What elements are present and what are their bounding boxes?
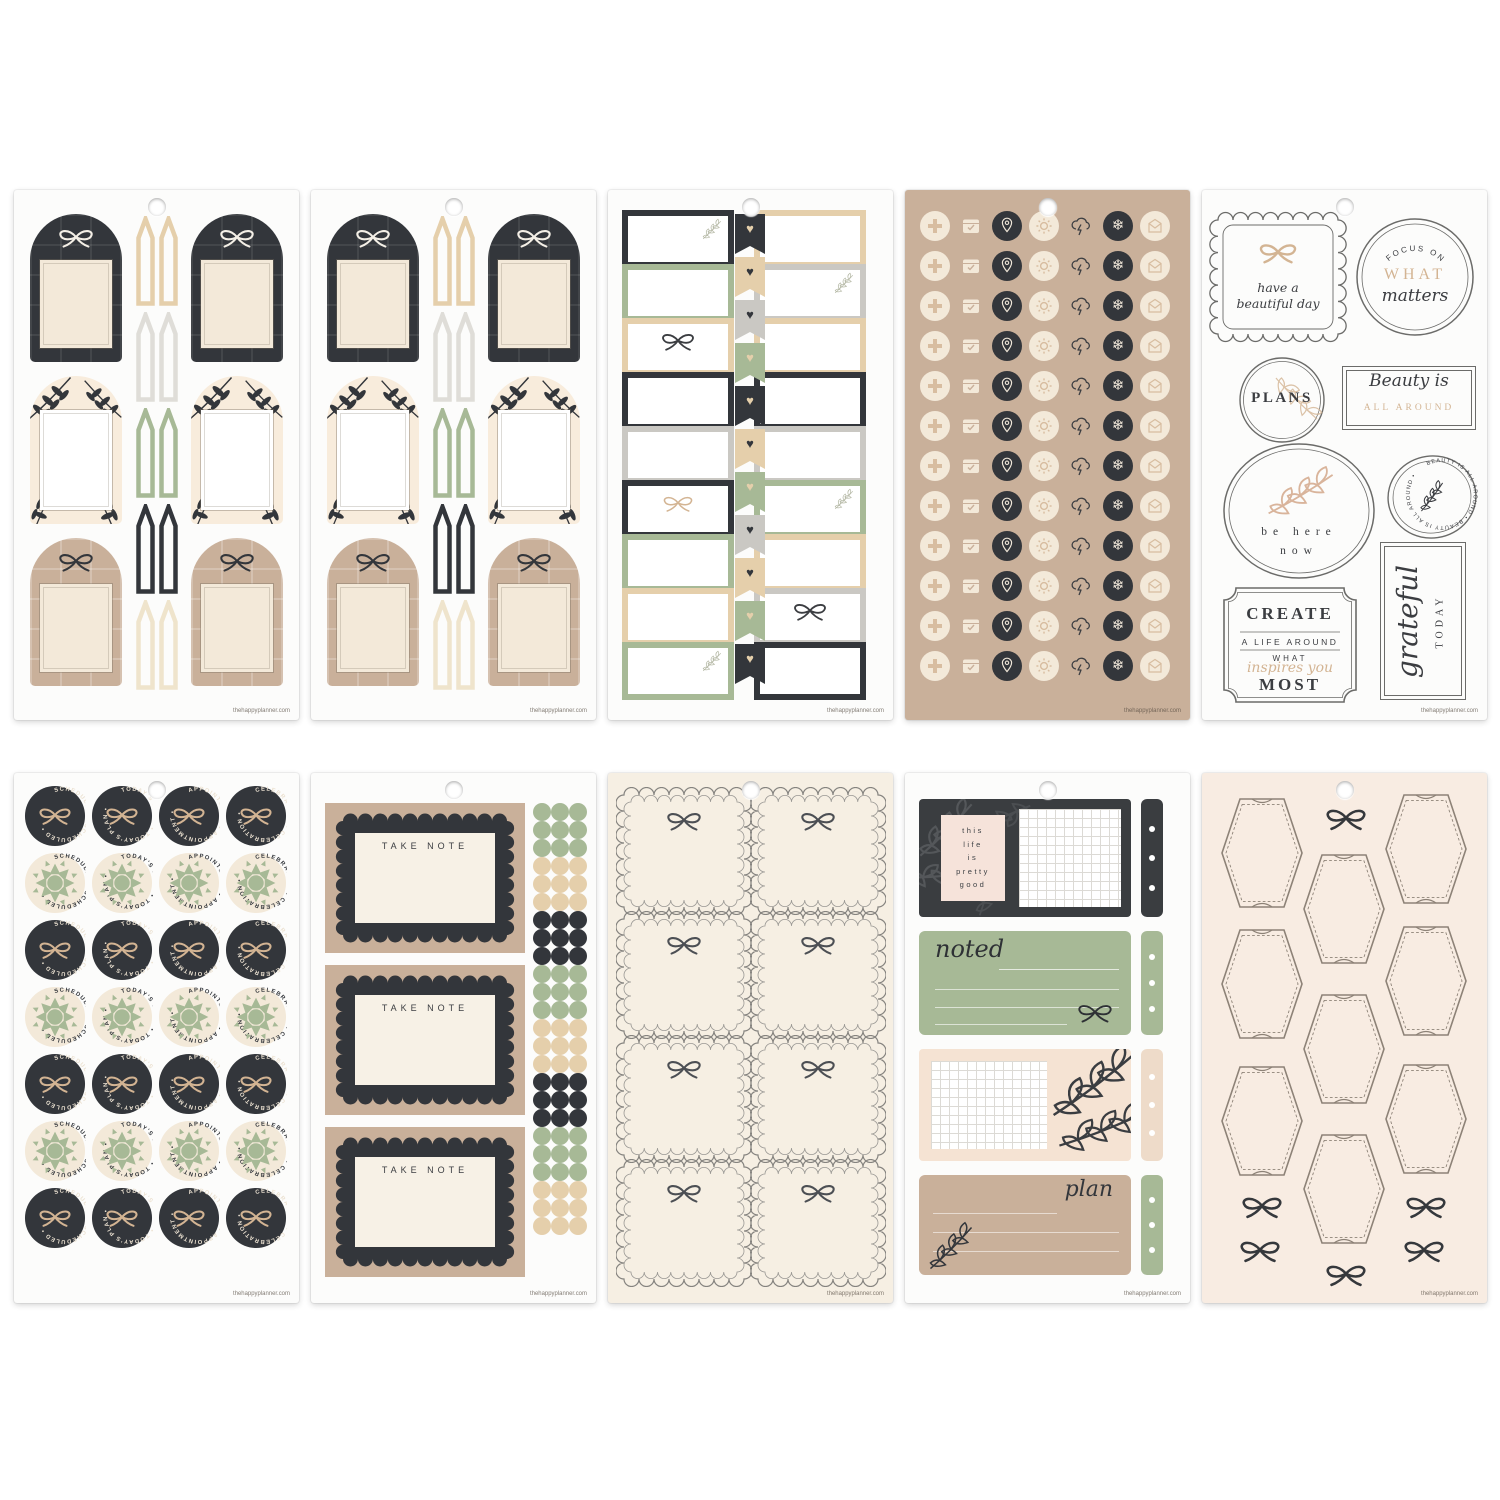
page-flag-sticker: [433, 504, 452, 594]
take-note-title: TAKE NOTE: [355, 841, 495, 851]
hex-tag-sticker: [1220, 928, 1304, 1040]
calendar-icon: [962, 577, 980, 595]
bow-icon: [662, 809, 706, 834]
snowflake-icon: ❄: [1103, 651, 1133, 681]
medical-cross-icon: [920, 291, 950, 321]
storm-cloud-icon: [1069, 614, 1093, 638]
sticker-product-image: thehappyplanner.com thehappyplanner.com♥…: [0, 0, 1500, 1500]
sticker-plan-box: plan: [919, 1175, 1131, 1275]
location-pin-icon: [992, 531, 1022, 561]
dot-cluster-sticker: [533, 1127, 587, 1181]
label-box-sticker: [754, 426, 866, 484]
arch-label-area: [40, 260, 112, 348]
scallop-square-sticker: [624, 1043, 744, 1155]
envelope-icon: [1140, 371, 1170, 401]
snowflake-icon: ❄: [1103, 331, 1133, 361]
label-box-sticker: [754, 318, 866, 376]
site-url: thehappyplanner.com: [233, 708, 290, 714]
medical-cross-icon: [920, 211, 950, 241]
storm-cloud-icon: [1069, 574, 1093, 598]
sheet-body: ♥♥♥♥♥♥♥♥♥♥♥: [608, 190, 893, 720]
sun-icon: [1029, 531, 1059, 561]
location-pin-icon: [992, 291, 1022, 321]
page-flag-sticker: [136, 504, 155, 594]
snowflake-icon: ❄: [1103, 451, 1133, 481]
sticker-sheet-take-note: TAKE NOTE TAKE NOTE TAKE NOTEthehappypla…: [311, 773, 596, 1303]
bow-icon: [796, 809, 840, 834]
sun-icon: [1029, 411, 1059, 441]
snowflake-circle: ❄: [1103, 531, 1133, 561]
seal-sticker: SCHEDULED • SCHEDULED •: [24, 1120, 86, 1182]
seal-sticker: TODAY'S PLAN • TODAY'S PLAN •: [91, 852, 153, 914]
dot-cluster-sticker: [533, 1181, 587, 1235]
sticker-focus-on-what-matters: FOCUS ON WHAT matters: [1354, 216, 1476, 338]
dot-cluster-sticker: [533, 1073, 587, 1127]
sheet-body: SCHEDULED • SCHEDULED • TODAY'S PLAN • T…: [14, 773, 299, 1303]
hex-tag-sticker: [1302, 1133, 1386, 1245]
sun-icon: [1029, 211, 1059, 241]
label-box-sticker: [754, 264, 866, 322]
hang-hole-icon: [742, 198, 760, 216]
label-box-sticker: [622, 318, 734, 376]
sticker-sheet-icon-dots: ❄❄❄❄❄❄❄❄❄❄❄❄thehappyplanner.com: [905, 190, 1190, 720]
take-note-title: TAKE NOTE: [355, 1003, 495, 1013]
sheet-row-bottom: SCHEDULED • SCHEDULED • TODAY'S PLAN • T…: [14, 773, 1487, 1303]
calendar-icon: [962, 297, 980, 315]
arch-tag-sticker: [30, 376, 122, 524]
sheet-body: thislifeisprettygood noted plan: [905, 773, 1190, 1303]
sticker-beauty-is-all-around: Beauty is ALL AROUND: [1342, 366, 1476, 430]
storm-cloud-icon: [1069, 334, 1093, 358]
bow-icon: [1398, 1237, 1450, 1266]
location-pin-icon: [992, 331, 1022, 361]
page-flag-sticker: [159, 600, 178, 690]
hex-tag-sticker: [1384, 793, 1468, 905]
arch-label-area: [498, 584, 570, 672]
seal-sticker: CELEBRATION • CELEBRATION •: [225, 1120, 287, 1182]
location-pin-icon: [992, 651, 1022, 681]
seal-sticker: CELEBRATION • CELEBRATION •: [225, 1053, 287, 1115]
heart-flag-sticker: ♥: [735, 214, 765, 254]
arch-tag-sticker: [191, 376, 283, 524]
hex-tag-sticker: [1220, 1065, 1304, 1177]
snowflake-icon: ❄: [1103, 411, 1133, 441]
take-note-card-sticker: TAKE NOTE: [325, 965, 525, 1115]
seal-sticker: CELEBRATION • CELEBRATION •: [225, 785, 287, 847]
hex-tag-sticker: [1220, 797, 1304, 909]
bow-icon: [1400, 1193, 1452, 1222]
envelope-icon: [1140, 411, 1170, 441]
seal-sticker: APPOINTMENT • APPOINTMENT •: [158, 785, 220, 847]
storm-cloud-icon: [1069, 254, 1093, 278]
site-url: thehappyplanner.com: [1421, 1291, 1478, 1297]
site-url: thehappyplanner.com: [1421, 708, 1478, 714]
sun-icon: [1029, 291, 1059, 321]
take-note-title: TAKE NOTE: [355, 1165, 495, 1175]
label-box-sticker: [754, 480, 866, 538]
hang-hole-icon: [445, 781, 463, 799]
calendar-icon: [962, 257, 980, 275]
arch-label-area: [337, 260, 409, 348]
label-box-sticker: [622, 534, 734, 592]
medical-cross-icon: [920, 611, 950, 641]
page-flag-sticker: [433, 408, 452, 498]
envelope-icon: [1140, 211, 1170, 241]
bow-icon: [54, 550, 98, 575]
location-pin-icon: [992, 491, 1022, 521]
bow-icon: [1073, 1001, 1117, 1026]
bow-icon: [512, 550, 556, 575]
site-url: thehappyplanner.com: [233, 1291, 290, 1297]
seal-sticker: CELEBRATION • CELEBRATION •: [225, 986, 287, 1048]
hang-hole-icon: [1039, 198, 1057, 216]
leaf-sprig-icon: [923, 1220, 979, 1275]
leaf-sprig-icon: [1413, 478, 1451, 516]
page-flag-sticker: [456, 312, 475, 402]
page-flag-sticker: [456, 504, 475, 594]
site-url: thehappyplanner.com: [530, 1291, 587, 1297]
bow-icon: [54, 226, 98, 251]
scallop-square-sticker: [624, 795, 744, 907]
seal-sticker: TODAY'S PLAN • TODAY'S PLAN •: [91, 785, 153, 847]
calendar-icon: [962, 217, 980, 235]
snowflake-icon: ❄: [1103, 611, 1133, 641]
sticker-sheet-scallop-frames: thehappyplanner.com: [608, 773, 893, 1303]
label-box-sticker: [754, 642, 866, 700]
dot-cluster-sticker: [533, 1019, 587, 1073]
take-note-card-sticker: TAKE NOTE: [325, 1127, 525, 1277]
arch-tag-sticker: [30, 538, 122, 686]
sticker-sheet-arch-tags-1: thehappyplanner.com: [14, 190, 299, 720]
snowflake-icon: ❄: [1103, 251, 1133, 281]
take-note-card-sticker: TAKE NOTE: [325, 803, 525, 953]
heart-icon: ♥: [735, 522, 765, 537]
sticker-sheet-arch-tags-2: thehappyplanner.com: [311, 190, 596, 720]
bow-icon: [796, 1057, 840, 1082]
side-tab-sticker: [1141, 1049, 1163, 1161]
storm-cloud-icon: [1069, 414, 1093, 438]
medical-cross-icon: [920, 651, 950, 681]
heart-icon: ♥: [735, 436, 765, 451]
calendar-icon: [962, 617, 980, 635]
arch-label-area: [337, 410, 409, 510]
label-box-sticker: [754, 534, 866, 592]
site-url: thehappyplanner.com: [827, 1291, 884, 1297]
calendar-icon: [962, 537, 980, 555]
sun-icon: [1029, 651, 1059, 681]
heart-flag-sticker: ♥: [735, 644, 765, 684]
sheet-row-top: thehappyplanner.com thehappyplanner.com♥…: [14, 190, 1487, 720]
label-box-sticker: [622, 588, 734, 646]
snowflake-circle: ❄: [1103, 451, 1133, 481]
side-tab-sticker: [1141, 1175, 1163, 1275]
storm-cloud-icon: [1069, 534, 1093, 558]
sheet-body: [311, 190, 596, 720]
site-url: thehappyplanner.com: [530, 708, 587, 714]
seal-sticker: SCHEDULED • SCHEDULED •: [24, 919, 86, 981]
medical-cross-icon: [920, 451, 950, 481]
bow-icon: [215, 226, 259, 251]
page-flag-sticker: [456, 216, 475, 306]
sticker-plans: PLANS: [1238, 356, 1326, 444]
sun-icon: [1029, 571, 1059, 601]
heart-flag-sticker: ♥: [735, 300, 765, 340]
scallop-square-sticker: [624, 919, 744, 1031]
label-box-sticker: [622, 372, 734, 430]
bow-icon: [662, 933, 706, 958]
location-pin-icon: [992, 211, 1022, 241]
bow-icon: [351, 226, 395, 251]
heart-flag-sticker: ♥: [735, 343, 765, 383]
envelope-icon: [1140, 291, 1170, 321]
heart-icon: ♥: [735, 350, 765, 365]
arch-tag-sticker: [191, 538, 283, 686]
arch-label-area: [337, 584, 409, 672]
arch-label-area: [201, 260, 273, 348]
dot-cluster-sticker: [533, 911, 587, 965]
heart-flag-sticker: ♥: [735, 558, 765, 598]
seal-sticker: APPOINTMENT • APPOINTMENT •: [158, 1120, 220, 1182]
medical-cross-icon: [920, 331, 950, 361]
envelope-icon: [1140, 451, 1170, 481]
seal-sticker: APPOINTMENT • APPOINTMENT •: [158, 1053, 220, 1115]
location-pin-icon: [992, 251, 1022, 281]
page-flag-sticker: [136, 408, 155, 498]
snowflake-circle: ❄: [1103, 611, 1133, 641]
heart-icon: ♥: [735, 608, 765, 623]
arch-tag-sticker: [327, 214, 419, 362]
bow-icon: [1234, 1237, 1286, 1266]
side-tab-sticker: [1141, 799, 1163, 917]
storm-cloud-icon: [1069, 494, 1093, 518]
heart-icon: ♥: [735, 307, 765, 322]
site-url: thehappyplanner.com: [1124, 708, 1181, 714]
envelope-icon: [1140, 571, 1170, 601]
page-flag-sticker: [159, 504, 178, 594]
storm-cloud-icon: [1069, 294, 1093, 318]
storm-cloud-icon: [1069, 454, 1093, 478]
page-flag-sticker: [159, 312, 178, 402]
snowflake-icon: ❄: [1103, 571, 1133, 601]
scallop-square-sticker: [758, 1043, 878, 1155]
snowflake-icon: ❄: [1103, 291, 1133, 321]
seal-sticker: TODAY'S PLAN • TODAY'S PLAN •: [91, 1120, 153, 1182]
envelope-icon: [1140, 611, 1170, 641]
page-flag-sticker: [136, 312, 155, 402]
seal-sticker: TODAY'S PLAN • TODAY'S PLAN •: [91, 1053, 153, 1115]
page-flag-sticker: [456, 408, 475, 498]
sticker-sheet-round-seals: SCHEDULED • SCHEDULED • TODAY'S PLAN • T…: [14, 773, 299, 1303]
page-flag-sticker: [136, 216, 155, 306]
seal-sticker: CELEBRATION • CELEBRATION •: [225, 1187, 287, 1249]
scallop-square-sticker: [758, 795, 878, 907]
location-pin-icon: [992, 571, 1022, 601]
arch-label-area: [40, 410, 112, 510]
dot-cluster-sticker: [533, 803, 587, 857]
page-flag-sticker: [433, 312, 452, 402]
label-box-sticker: [622, 210, 734, 268]
scallop-square-sticker: [624, 1167, 744, 1279]
seal-sticker: APPOINTMENT • APPOINTMENT •: [158, 852, 220, 914]
sticker-noted-box: noted: [919, 931, 1131, 1035]
seal-sticker: SCHEDULED • SCHEDULED •: [24, 852, 86, 914]
arch-label-area: [201, 410, 273, 510]
seal-sticker: TODAY'S PLAN • TODAY'S PLAN •: [91, 1187, 153, 1249]
hex-tag-sticker: [1384, 925, 1468, 1037]
seal-sticker: APPOINTMENT • APPOINTMENT •: [158, 1187, 220, 1249]
site-url: thehappyplanner.com: [1124, 1291, 1181, 1297]
envelope-icon: [1140, 331, 1170, 361]
leaf-sprig-icon: [832, 272, 856, 296]
hang-hole-icon: [742, 781, 760, 799]
label-box-sticker: [754, 210, 866, 268]
leaf-sprig-icon: [700, 650, 724, 674]
arch-label-area: [201, 584, 273, 672]
site-url: thehappyplanner.com: [827, 708, 884, 714]
sheet-body: TAKE NOTE TAKE NOTE TAKE NOTE: [311, 773, 596, 1303]
heart-flag-sticker: ♥: [735, 386, 765, 426]
seal-sticker: TODAY'S PLAN • TODAY'S PLAN •: [91, 986, 153, 1048]
medical-cross-icon: [920, 411, 950, 441]
bow-icon: [1236, 1193, 1288, 1222]
page-flag-sticker: [433, 600, 452, 690]
page-flag-sticker: [136, 600, 155, 690]
snowflake-icon: ❄: [1103, 491, 1133, 521]
arch-tag-sticker: [488, 376, 580, 524]
hang-hole-icon: [1336, 781, 1354, 799]
sun-icon: [1029, 251, 1059, 281]
snowflake-circle: ❄: [1103, 651, 1133, 681]
heart-flag-sticker: ♥: [735, 257, 765, 297]
heart-flag-sticker: ♥: [735, 515, 765, 555]
snowflake-circle: ❄: [1103, 331, 1133, 361]
bow-icon: [215, 550, 259, 575]
heart-icon: ♥: [735, 479, 765, 494]
label-box-sticker: [754, 372, 866, 430]
bow-icon: [662, 1181, 706, 1206]
sticker-sheet-label-boxes: ♥♥♥♥♥♥♥♥♥♥♥thehappyplanner.com: [608, 190, 893, 720]
sticker-grateful-today: grateful TODAY: [1380, 542, 1466, 700]
hang-hole-icon: [148, 198, 166, 216]
sticker-grid-leaf-box: [919, 1049, 1131, 1161]
storm-cloud-icon: [1069, 654, 1093, 678]
seal-sticker: CELEBRATION • CELEBRATION •: [225, 852, 287, 914]
bow-icon: [789, 600, 831, 624]
bow-icon: [796, 1181, 840, 1206]
envelope-icon: [1140, 491, 1170, 521]
svg-text:FOCUS ON: FOCUS ON: [1384, 244, 1447, 264]
storm-cloud-icon: [1069, 374, 1093, 398]
hex-tag-sticker: [1384, 1063, 1468, 1175]
heart-flag-sticker: ♥: [735, 601, 765, 641]
seal-sticker: SCHEDULED • SCHEDULED •: [24, 1053, 86, 1115]
seal-sticker: SCHEDULED • SCHEDULED •: [24, 785, 86, 847]
snowflake-circle: ❄: [1103, 571, 1133, 601]
bow-icon: [796, 933, 840, 958]
bow-icon: [512, 226, 556, 251]
snowflake-circle: ❄: [1103, 251, 1133, 281]
seal-sticker: SCHEDULED • SCHEDULED •: [24, 986, 86, 1048]
location-pin-icon: [992, 411, 1022, 441]
arch-tag-sticker: [488, 214, 580, 362]
hang-hole-icon: [1039, 781, 1057, 799]
sun-icon: [1029, 451, 1059, 481]
arch-label-area: [498, 410, 570, 510]
calendar-icon: [962, 337, 980, 355]
calendar-icon: [962, 657, 980, 675]
snowflake-circle: ❄: [1103, 211, 1133, 241]
heart-flag-sticker: ♥: [735, 429, 765, 469]
sticker-sheet-note-boxes: thislifeisprettygood noted plan thehappy…: [905, 773, 1190, 1303]
bow-icon: [1320, 1261, 1372, 1290]
sheet-body: [14, 190, 299, 720]
bow-icon: [1254, 240, 1302, 267]
page-flag-sticker: [456, 600, 475, 690]
heart-icon: ♥: [735, 221, 765, 236]
snowflake-icon: ❄: [1103, 531, 1133, 561]
location-pin-icon: [992, 611, 1022, 641]
medical-cross-icon: [920, 371, 950, 401]
label-box-sticker: [622, 426, 734, 484]
hang-hole-icon: [445, 198, 463, 216]
sun-icon: [1029, 371, 1059, 401]
sheet-body: ❄❄❄❄❄❄❄❄❄❄❄❄: [905, 190, 1190, 720]
arch-tag-sticker: [30, 214, 122, 362]
heart-icon: ♥: [735, 393, 765, 408]
storm-cloud-icon: [1069, 214, 1093, 238]
page-flag-sticker: [433, 216, 452, 306]
location-pin-icon: [992, 371, 1022, 401]
sheet-body: [608, 773, 893, 1303]
sticker-have-a-beautiful-day: have abeautiful day: [1218, 220, 1338, 334]
heart-icon: ♥: [735, 651, 765, 666]
sun-icon: [1029, 491, 1059, 521]
medical-cross-icon: [920, 531, 950, 561]
sticker-be-here-now: be here now: [1222, 442, 1376, 580]
label-box-sticker: [754, 588, 866, 646]
arch-tag-sticker: [327, 538, 419, 686]
arch-label-area: [498, 260, 570, 348]
medical-cross-icon: [920, 251, 950, 281]
seal-sticker: TODAY'S PLAN • TODAY'S PLAN •: [91, 919, 153, 981]
calendar-icon: [962, 497, 980, 515]
seal-sticker: SCHEDULED • SCHEDULED •: [24, 1187, 86, 1249]
scallop-square-sticker: [758, 919, 878, 1031]
location-pin-icon: [992, 451, 1022, 481]
snowflake-icon: ❄: [1103, 371, 1133, 401]
heart-icon: ♥: [735, 264, 765, 279]
medical-cross-icon: [920, 491, 950, 521]
arch-tag-sticker: [327, 376, 419, 524]
envelope-icon: [1140, 251, 1170, 281]
bow-icon: [662, 1057, 706, 1082]
snowflake-circle: ❄: [1103, 291, 1133, 321]
envelope-icon: [1140, 651, 1170, 681]
bow-icon: [351, 550, 395, 575]
dot-cluster-sticker: [533, 857, 587, 911]
bow-icon: [659, 493, 697, 515]
sheet-body: have abeautiful day FOCUS ON WHAT matter…: [1202, 190, 1487, 720]
medical-cross-icon: [920, 571, 950, 601]
leaf-sprig-icon: [832, 488, 856, 512]
arch-tag-sticker: [191, 214, 283, 362]
hang-hole-icon: [1336, 198, 1354, 216]
sticker-create-a-life: CREATE A LIFE AROUND WHAT inspires you M…: [1222, 586, 1358, 704]
snowflake-circle: ❄: [1103, 491, 1133, 521]
page-flag-sticker: [159, 408, 178, 498]
calendar-icon: [962, 457, 980, 475]
grid-note-area: [1019, 809, 1121, 907]
